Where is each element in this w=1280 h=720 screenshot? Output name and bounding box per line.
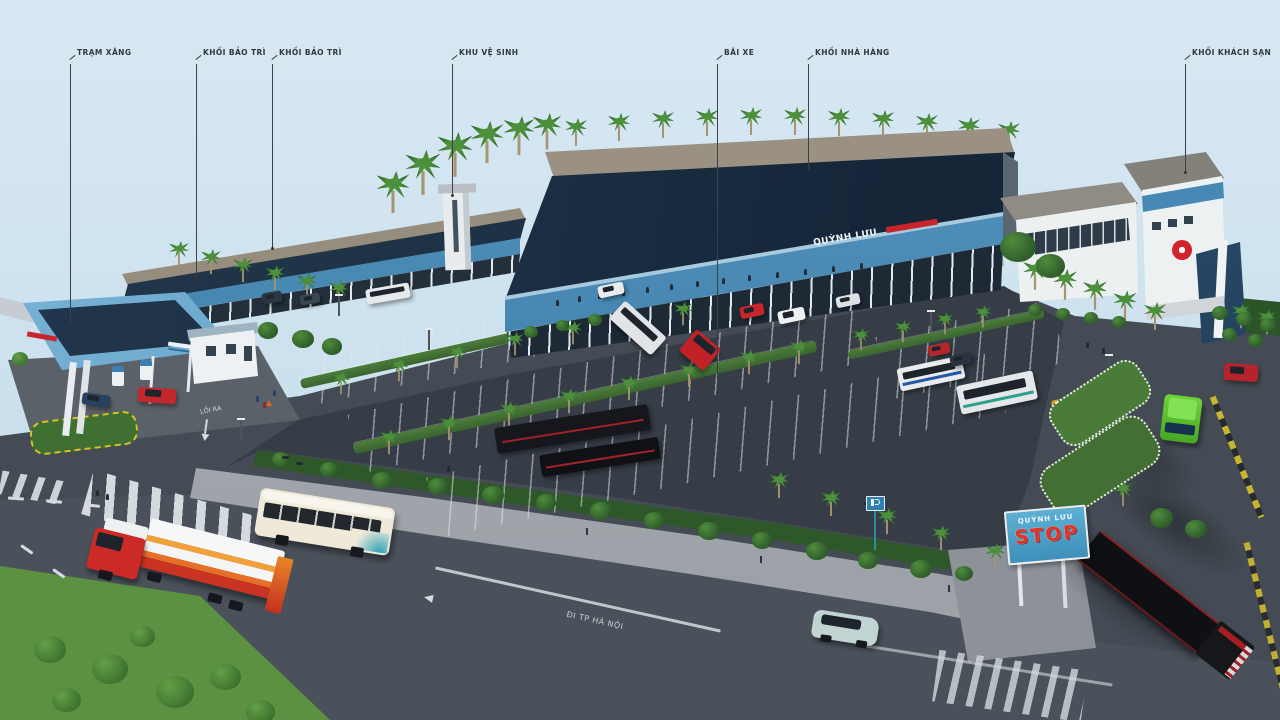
tree [130, 626, 155, 647]
palm-tree [958, 117, 980, 147]
palm-tree [377, 171, 410, 216]
coach-bus-large [252, 487, 399, 566]
palm-tree [1083, 279, 1107, 312]
cab [86, 527, 147, 580]
gas-brand-red-text [27, 331, 57, 341]
road-dash [303, 313, 307, 317]
tree [1248, 334, 1263, 347]
tree [156, 676, 194, 708]
bus-roof [262, 490, 394, 520]
road-dash [312, 331, 316, 335]
road-exit-text: LỐI RA [199, 404, 221, 416]
kiosk-window [206, 346, 216, 356]
palm-tree [565, 118, 587, 148]
palm-tree [652, 110, 674, 140]
tree [644, 512, 664, 529]
palm-tree [998, 121, 1020, 151]
entrance-tower-slit [452, 200, 459, 252]
callout-leader-line [452, 64, 453, 195]
callout-label: KHỐI KHÁCH SẠN [1192, 48, 1271, 57]
trailer [139, 518, 285, 600]
vehicle-car-red [138, 387, 177, 405]
road-dash [294, 295, 298, 299]
tree [34, 636, 66, 663]
palm-tree [769, 472, 790, 501]
vehicle-car-dark-blue [81, 392, 110, 408]
gas-column [186, 348, 192, 392]
road-arrow-left [423, 593, 433, 603]
person [273, 390, 276, 396]
vehicle-car-red [739, 303, 765, 320]
vehicle-car-dark [299, 292, 320, 305]
hotel-logo-icon [1172, 240, 1192, 260]
tree [372, 472, 392, 489]
palm-tree [1231, 303, 1251, 330]
cab-deflector [103, 517, 149, 541]
kiosk-door [244, 346, 252, 361]
palm-tree [985, 543, 1005, 570]
road-dash [21, 544, 34, 554]
restaurant-sign-text: QUỲNH LƯU [813, 228, 879, 249]
tree [590, 502, 612, 520]
fuel-pump [140, 360, 152, 380]
callout-label: KHU VỆ SINH [459, 48, 518, 57]
palm-tree [877, 508, 898, 537]
van-roof [1167, 397, 1197, 420]
palm-tree [265, 265, 285, 292]
callout-leader-line [272, 64, 273, 248]
person [447, 466, 450, 472]
motorbike [296, 462, 303, 465]
road-dash [46, 499, 62, 503]
van-windshield [1164, 422, 1195, 436]
tree [12, 352, 28, 366]
tree [1084, 312, 1098, 324]
bus-windows [263, 502, 382, 535]
gas-column [148, 356, 154, 404]
palm-tree [1023, 259, 1047, 292]
traffic-cone [266, 400, 272, 406]
motorbike [282, 456, 289, 459]
person [106, 494, 109, 500]
callout-label: TRẠM XĂNG [77, 48, 131, 57]
bollard [760, 556, 762, 563]
gas-brand-blue-text [168, 342, 202, 351]
person [722, 278, 725, 284]
tree [806, 542, 828, 560]
road-dash [84, 503, 100, 507]
palm-tree [872, 110, 894, 140]
callout-leader-line [196, 64, 197, 277]
palm-tree [1257, 309, 1277, 336]
person [96, 490, 99, 496]
tree [1236, 312, 1253, 326]
hotel-window [1184, 216, 1193, 224]
road-dash [53, 568, 66, 578]
fuel-pump [112, 366, 124, 386]
callout-leader-line [808, 64, 809, 168]
road-line-long [435, 566, 721, 632]
palm-tree [821, 490, 842, 519]
tree [955, 566, 973, 581]
callout-leader-line [717, 64, 718, 392]
bollard [586, 528, 588, 535]
palm-tree [233, 257, 253, 284]
tree [1260, 318, 1276, 332]
gas-island [28, 410, 139, 457]
light-pole [1108, 356, 1110, 376]
person [263, 402, 266, 408]
person [878, 505, 881, 511]
tree [1036, 254, 1065, 278]
tree [698, 522, 720, 540]
callout-leader-line [1185, 64, 1186, 172]
bus-livery [349, 528, 390, 554]
restaurant-sign-red-text [886, 219, 938, 234]
palm-tree [437, 132, 472, 180]
trailer-rear [265, 556, 294, 614]
tree [858, 552, 878, 569]
palm-tree [329, 280, 349, 307]
tree [246, 700, 275, 720]
tree [52, 688, 81, 712]
kiosk-window [226, 344, 236, 354]
callout-label: KHỐI NHÀ HÀNG [815, 48, 890, 57]
palm-tree [1053, 269, 1077, 302]
palm-tree [784, 107, 806, 137]
hotel-window [1168, 219, 1177, 227]
tree [1056, 308, 1070, 320]
tree [1112, 316, 1126, 328]
person [804, 269, 807, 275]
person [1102, 348, 1105, 354]
rest-stop-rendering: ĐI TP HÀ NỘI LỐI RA QUỲNH LƯU [0, 0, 1280, 720]
palm-tree [201, 249, 221, 276]
palm-tree [608, 113, 630, 143]
callout-leader-line [70, 64, 71, 322]
palm-tree [504, 116, 535, 158]
tree [292, 330, 314, 348]
gas-pillar [76, 360, 91, 434]
vehicle-minibus-white [365, 282, 411, 304]
palm-tree [931, 525, 951, 552]
windshield [95, 532, 124, 552]
road-dash [8, 496, 24, 500]
palm-tree [169, 241, 189, 268]
pylon-post [1017, 552, 1024, 606]
parking-sign-board [866, 496, 885, 511]
tree [1212, 306, 1228, 320]
callout-label: KHỐI BẢO TRÌ [203, 48, 266, 57]
tree [210, 664, 241, 690]
entrance-tower [443, 190, 472, 271]
callout-label: KHỐI BẢO TRÌ [279, 48, 342, 57]
semi-grill [1224, 646, 1252, 679]
exit-arrow-line [204, 419, 208, 434]
vehicle-car-red [1223, 363, 1258, 382]
parking-sign-pole [874, 508, 876, 550]
tree [1222, 328, 1237, 341]
tree [272, 452, 290, 467]
exit-arrow-head [201, 433, 210, 441]
palm-tree [471, 121, 504, 166]
bollard [948, 585, 950, 592]
tree [320, 462, 338, 477]
person [1086, 342, 1089, 348]
motorbike [864, 502, 871, 505]
vehicle-suv-dark [261, 290, 283, 304]
light-pole [338, 296, 340, 316]
restaurant-sign: QUỲNH LƯU [811, 210, 938, 250]
callout-label: BÃI XE [724, 48, 754, 57]
zebra-crossing-left [81, 470, 269, 564]
zebra-crossing-small [0, 470, 68, 505]
palm-tree [297, 273, 317, 300]
gas-pillar [62, 362, 77, 436]
palm-tree [533, 113, 562, 152]
person [748, 275, 751, 281]
entrance-tower-cap [438, 183, 476, 193]
palm-tree [1113, 291, 1136, 323]
cargo-truck-red [78, 501, 294, 639]
road-line-long-2 [865, 644, 1112, 686]
light-pole [240, 420, 242, 440]
road-direction-text: ĐI TP HÀ NỘI [566, 610, 625, 631]
tree [752, 532, 772, 549]
minivan-windows [821, 614, 862, 630]
hotel-window [1152, 222, 1161, 230]
palm-tree [696, 108, 718, 138]
palm-tree [828, 108, 850, 138]
tree [258, 322, 278, 339]
curb-striped [1244, 542, 1280, 708]
person [860, 263, 863, 269]
tree [1000, 232, 1036, 262]
hotel-fin [1213, 240, 1227, 338]
palm-tree [916, 113, 938, 143]
person [256, 396, 259, 402]
palm-tree [740, 107, 762, 137]
person [776, 272, 779, 278]
tree [92, 654, 128, 684]
curb-striped [1210, 396, 1264, 519]
palm-tree [1144, 302, 1166, 332]
person [832, 266, 835, 272]
tree [910, 560, 932, 578]
palm-tree [405, 150, 440, 198]
